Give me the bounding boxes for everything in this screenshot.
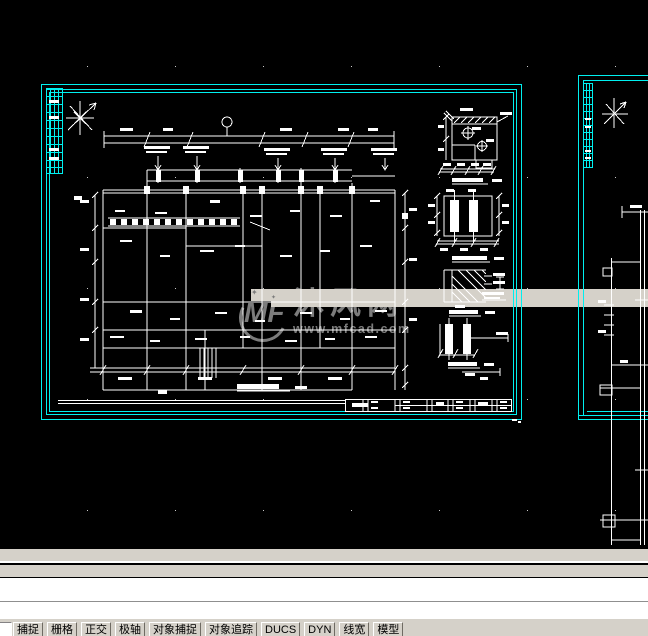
main-sheet-frame bbox=[42, 85, 522, 420]
status-toggle-osnap[interactable]: 对象捕捉 bbox=[149, 622, 201, 636]
annotation-text-marks bbox=[49, 100, 642, 423]
status-toggle-row: 捕捉栅格正交极轴对象捕捉对象追踪DUCSDYN线宽模型 bbox=[13, 622, 403, 636]
status-toggle-grid[interactable]: 栅格 bbox=[47, 622, 77, 636]
status-toggle-dyn[interactable]: DYN bbox=[304, 622, 335, 636]
horizontal-scrollbar[interactable] bbox=[0, 549, 648, 561]
status-toggle-polar[interactable]: 极轴 bbox=[115, 622, 145, 636]
structural-plan-linework bbox=[90, 168, 408, 391]
status-toggle-lineweight[interactable]: 线宽 bbox=[339, 622, 369, 636]
coordinate-readout[interactable] bbox=[0, 622, 12, 636]
command-line-window[interactable] bbox=[0, 578, 648, 618]
cad-canvas[interactable] bbox=[0, 0, 648, 549]
command-input-line[interactable] bbox=[3, 602, 643, 617]
status-toggle-ortho[interactable]: 正交 bbox=[81, 622, 111, 636]
right-sheet-linework bbox=[600, 98, 648, 545]
plan-dimension-lines bbox=[104, 117, 394, 170]
command-history-line[interactable] bbox=[3, 580, 643, 600]
command-window-grip[interactable] bbox=[0, 565, 648, 577]
status-toggle-ducs[interactable]: DUCS bbox=[261, 622, 300, 636]
status-toggle-otrack[interactable]: 对象追踪 bbox=[205, 622, 257, 636]
model-space-viewport[interactable]: MF ✦ ✦ 沐风网® www.mfcad.com bbox=[0, 0, 648, 549]
north-arrow-icon bbox=[66, 101, 96, 135]
title-block bbox=[58, 399, 512, 412]
status-bar: 捕捉栅格正交极轴对象捕捉对象追踪DUCSDYN线宽模型 bbox=[0, 618, 648, 636]
status-toggle-model[interactable]: 模型 bbox=[373, 622, 403, 636]
cad-application-window: MF ✦ ✦ 沐风网® www.mfcad.com bbox=[0, 0, 648, 636]
status-toggle-snap[interactable]: 捕捉 bbox=[13, 622, 43, 636]
